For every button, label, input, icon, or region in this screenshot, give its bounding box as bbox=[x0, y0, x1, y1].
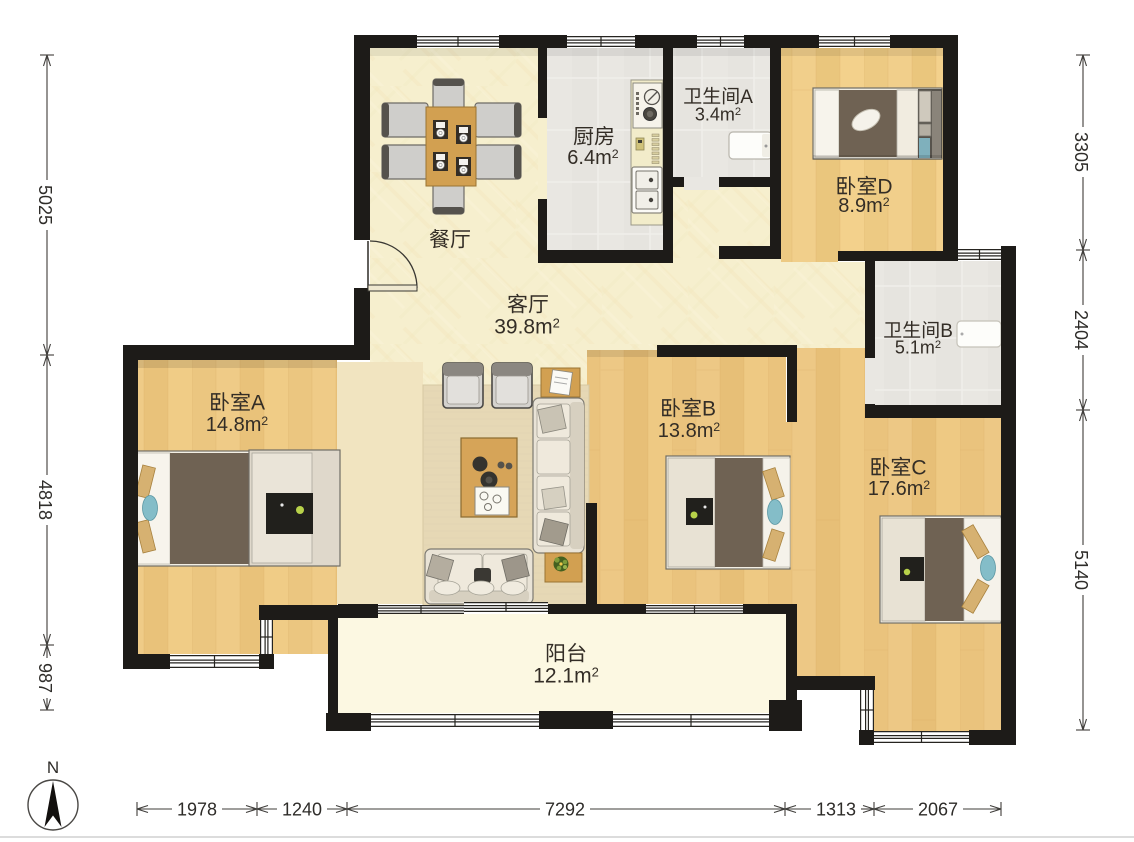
svg-text:5: 5 bbox=[895, 338, 905, 358]
svg-text:1313: 1313 bbox=[816, 799, 856, 819]
svg-text:4: 4 bbox=[584, 147, 595, 169]
svg-text:m: m bbox=[920, 338, 935, 358]
svg-text:2: 2 bbox=[735, 106, 741, 118]
svg-text:m: m bbox=[697, 420, 714, 442]
svg-text:8: 8 bbox=[523, 316, 535, 339]
svg-text:1240: 1240 bbox=[282, 799, 322, 819]
svg-text:1: 1 bbox=[658, 420, 669, 442]
svg-text:1: 1 bbox=[562, 665, 574, 688]
svg-text:m: m bbox=[245, 414, 262, 436]
svg-text:1: 1 bbox=[533, 665, 545, 688]
svg-text:m: m bbox=[535, 316, 553, 339]
svg-text:4: 4 bbox=[217, 414, 228, 436]
svg-text:3: 3 bbox=[669, 420, 680, 442]
svg-text:8: 8 bbox=[234, 414, 245, 436]
svg-text:5025: 5025 bbox=[35, 185, 55, 225]
svg-text:m: m bbox=[866, 195, 883, 217]
svg-text:N: N bbox=[47, 758, 59, 777]
svg-text:4: 4 bbox=[710, 105, 720, 125]
svg-text:2: 2 bbox=[923, 478, 930, 492]
svg-text:3: 3 bbox=[494, 316, 506, 339]
svg-text:6: 6 bbox=[896, 478, 907, 500]
svg-text:A: A bbox=[251, 392, 265, 415]
svg-text:m: m bbox=[720, 105, 735, 125]
svg-text:8: 8 bbox=[838, 195, 849, 217]
svg-text:5140: 5140 bbox=[1071, 550, 1091, 590]
svg-text:B: B bbox=[702, 398, 716, 421]
svg-text:2: 2 bbox=[612, 147, 619, 161]
svg-text:2: 2 bbox=[935, 339, 941, 351]
svg-text:7292: 7292 bbox=[545, 799, 585, 819]
svg-text:m: m bbox=[574, 665, 592, 688]
svg-text:1: 1 bbox=[910, 338, 920, 358]
svg-text:3: 3 bbox=[695, 105, 705, 125]
svg-text:2: 2 bbox=[713, 420, 720, 434]
svg-text:A: A bbox=[740, 87, 753, 108]
svg-text:m: m bbox=[907, 478, 924, 500]
svg-text:2404: 2404 bbox=[1071, 310, 1091, 350]
svg-text:7: 7 bbox=[879, 478, 890, 500]
svg-text:1: 1 bbox=[868, 478, 879, 500]
svg-text:B: B bbox=[940, 321, 953, 342]
svg-text:C: C bbox=[911, 457, 926, 480]
svg-text:2: 2 bbox=[261, 414, 268, 428]
svg-text:987: 987 bbox=[35, 663, 55, 693]
svg-text:4818: 4818 bbox=[35, 480, 55, 520]
svg-text:m: m bbox=[595, 147, 612, 169]
svg-text:2: 2 bbox=[553, 315, 560, 330]
svg-text:9: 9 bbox=[506, 316, 518, 339]
svg-text:6: 6 bbox=[567, 147, 578, 169]
svg-text:2: 2 bbox=[545, 665, 557, 688]
svg-text:2067: 2067 bbox=[918, 799, 958, 819]
svg-text:1978: 1978 bbox=[177, 799, 217, 819]
svg-text:1: 1 bbox=[206, 414, 217, 436]
svg-text:3305: 3305 bbox=[1071, 132, 1091, 172]
svg-text:8: 8 bbox=[686, 420, 697, 442]
svg-text:2: 2 bbox=[883, 195, 890, 209]
svg-text:2: 2 bbox=[592, 664, 599, 679]
svg-text:9: 9 bbox=[855, 195, 866, 217]
